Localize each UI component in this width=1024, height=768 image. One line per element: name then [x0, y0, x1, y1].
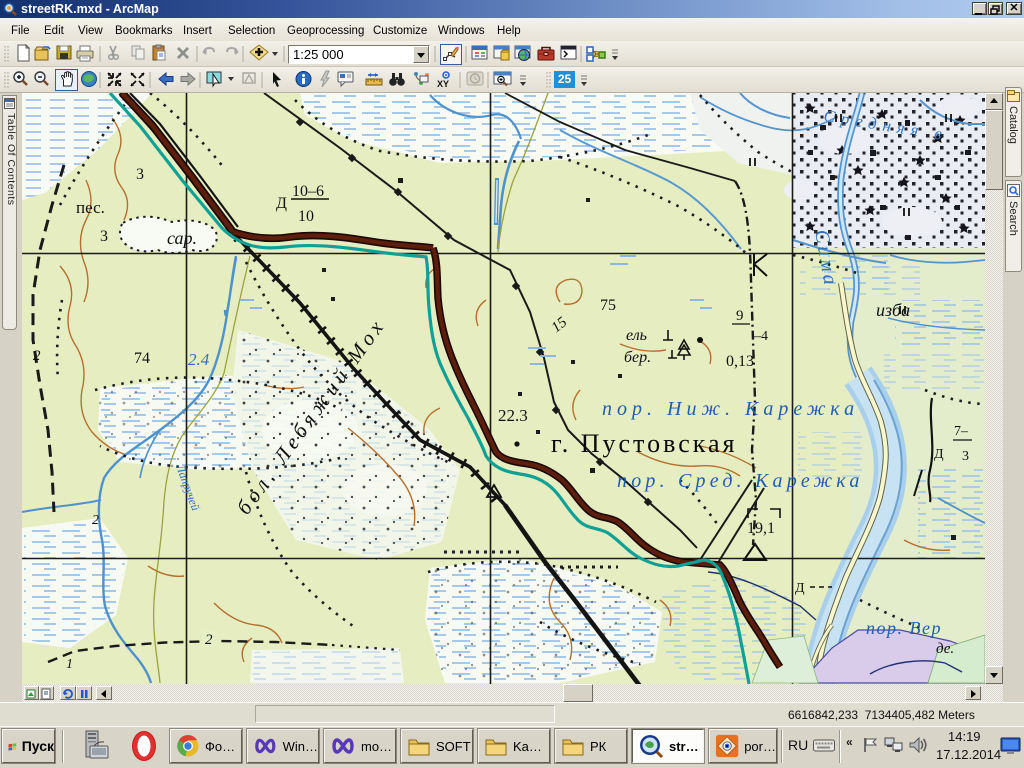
svg-text:пес.: пес. — [76, 198, 105, 217]
svg-text:19,1: 19,1 — [747, 520, 775, 537]
svg-text:75: 75 — [600, 297, 616, 314]
svg-text:г. Пустовская: г. Пустовская — [551, 429, 737, 458]
svg-text:–4: –4 — [753, 329, 768, 344]
svg-text:пор. Вер: пор. Вер — [866, 618, 942, 638]
svg-text:пор. Ниж. Карежка: пор. Ниж. Карежка — [602, 398, 859, 420]
svg-text:Д: Д — [795, 581, 805, 596]
svg-text:сар.: сар. — [167, 228, 197, 248]
svg-text:пор. Сред. Карежка: пор. Сред. Карежка — [617, 470, 864, 492]
svg-text:22.3: 22.3 — [498, 406, 528, 425]
svg-text:9: 9 — [736, 308, 744, 324]
svg-text:2: 2 — [205, 632, 213, 648]
svg-text:ель: ель — [626, 327, 647, 344]
svg-text:74: 74 — [134, 350, 150, 367]
svg-text:1: 1 — [66, 657, 73, 672]
svg-text:Д: Д — [934, 447, 944, 462]
svg-text:2: 2 — [92, 513, 99, 528]
svg-text:10–6: 10–6 — [292, 183, 324, 200]
svg-text:Д: Д — [276, 195, 287, 212]
svg-text:2: 2 — [33, 348, 41, 364]
svg-text:2.4: 2.4 — [188, 350, 210, 369]
svg-text:10: 10 — [298, 208, 314, 225]
svg-text:3: 3 — [962, 449, 969, 464]
svg-text:7–: 7– — [954, 424, 969, 439]
svg-text:XY: XY — [437, 79, 449, 89]
svg-text:де.: де. — [936, 641, 954, 657]
svg-text:3: 3 — [100, 228, 108, 245]
svg-text:бер.: бер. — [624, 349, 651, 366]
svg-text:0,13: 0,13 — [726, 353, 754, 370]
svg-text:3: 3 — [136, 166, 144, 183]
